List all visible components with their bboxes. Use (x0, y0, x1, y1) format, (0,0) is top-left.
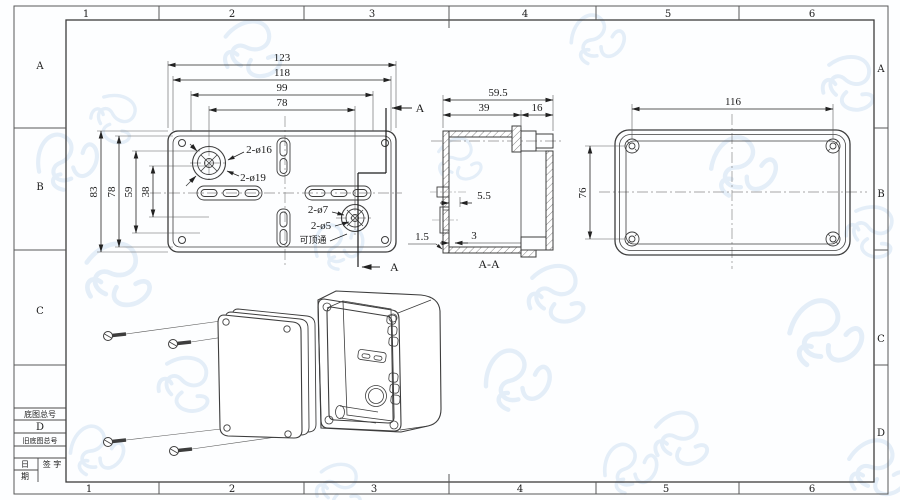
grid-row-c-right: C (877, 334, 885, 345)
grid-col-2-bottom: 2 (229, 484, 235, 495)
dim-height-inner: 78 (106, 186, 118, 198)
grid-col-2-top: 2 (229, 9, 235, 20)
dim-height-overall: 83 (88, 186, 100, 198)
grid-col-5-bottom: 5 (663, 484, 669, 495)
dim-width-bosses: 78 (277, 97, 289, 109)
dim-depth-gland: 16 (532, 102, 544, 114)
dim-height-vents: 59 (123, 186, 135, 198)
screw (170, 447, 193, 456)
iso-lid (218, 309, 316, 438)
dim-boss-offset: 5.5 (477, 190, 491, 202)
dim-depth-box: 39 (479, 102, 491, 114)
isometric-view (104, 291, 442, 456)
grid-row-a-left: A (35, 61, 44, 72)
title-date-char-bottom: 期 (21, 472, 29, 481)
title-size-letter: D (36, 422, 44, 433)
dim-end-width: 116 (725, 96, 742, 108)
section-view-label: A-A (478, 257, 500, 271)
label-knockout-note: 可顶通 (299, 235, 326, 246)
dim-lid-thickness: 1.5 (415, 231, 429, 243)
top-view: 123 118 99 78 83 78 59 38 2-ø16 2-ø19 2-… (88, 52, 425, 274)
grid-col-1-bottom: 1 (86, 484, 92, 495)
grid-col-4-bottom: 4 (517, 484, 523, 495)
section-view: 59.5 39 16 5.5 3 1.5 A-A (408, 87, 562, 271)
screw (104, 332, 127, 341)
dim-depth-overall: 59.5 (488, 87, 508, 99)
title-date-char-top: 日 (21, 460, 29, 469)
grid-col-4-top: 4 (522, 9, 528, 20)
grid-row-d-right: D (877, 428, 885, 439)
dim-width-inner: 118 (274, 67, 291, 79)
grid-col-6-bottom: 6 (809, 484, 815, 495)
label-knockout-16: 2-ø16 (246, 144, 272, 156)
label-knockout-5: 2-ø5 (311, 220, 332, 232)
dim-end-height: 76 (577, 187, 589, 199)
grid-row-c-left: C (36, 306, 44, 317)
drawing-sheet: 1 2 3 4 5 6 1 2 3 4 5 6 A B C A B C D 底图… (0, 0, 900, 500)
title-old-no-label: 旧底图总号 (23, 436, 58, 445)
iso-box (318, 291, 441, 432)
knockout-boss-upper (186, 144, 226, 186)
dim-rib-offset: 3 (471, 230, 477, 242)
grid-row-b-right: B (877, 189, 884, 200)
grid-col-6-top: 6 (809, 9, 815, 20)
dim-width-overall: 123 (274, 52, 291, 64)
vent-slots-top-center (277, 138, 290, 176)
section-letter-top: A (416, 101, 425, 115)
label-knockout-7: 2-ø7 (308, 204, 329, 216)
label-knockout-19: 2-ø19 (240, 172, 266, 184)
screw (169, 340, 192, 349)
drawing-canvas: 1 2 3 4 5 6 1 2 3 4 5 6 A B C A B C D 底图… (0, 0, 900, 500)
dim-height-bosses: 38 (140, 186, 152, 198)
grid-row-b-left: B (36, 182, 43, 193)
section-letter-bottom: A (390, 260, 399, 274)
vent-slots-bottom-center (277, 209, 290, 247)
title-sign-label: 签 字 (43, 459, 62, 469)
grid-row-a-right: A (876, 64, 885, 75)
grid-col-1-top: 1 (83, 9, 89, 20)
title-block: 底图总号 D 旧底图总号 日 期 签 字 (14, 408, 66, 482)
title-drawing-no-label: 底图总号 (24, 409, 56, 419)
grid-col-3-top: 3 (369, 9, 375, 20)
dim-width-vents: 99 (277, 82, 289, 94)
grid-col-3-bottom: 3 (371, 484, 377, 495)
grid-col-5-top: 5 (665, 9, 671, 20)
